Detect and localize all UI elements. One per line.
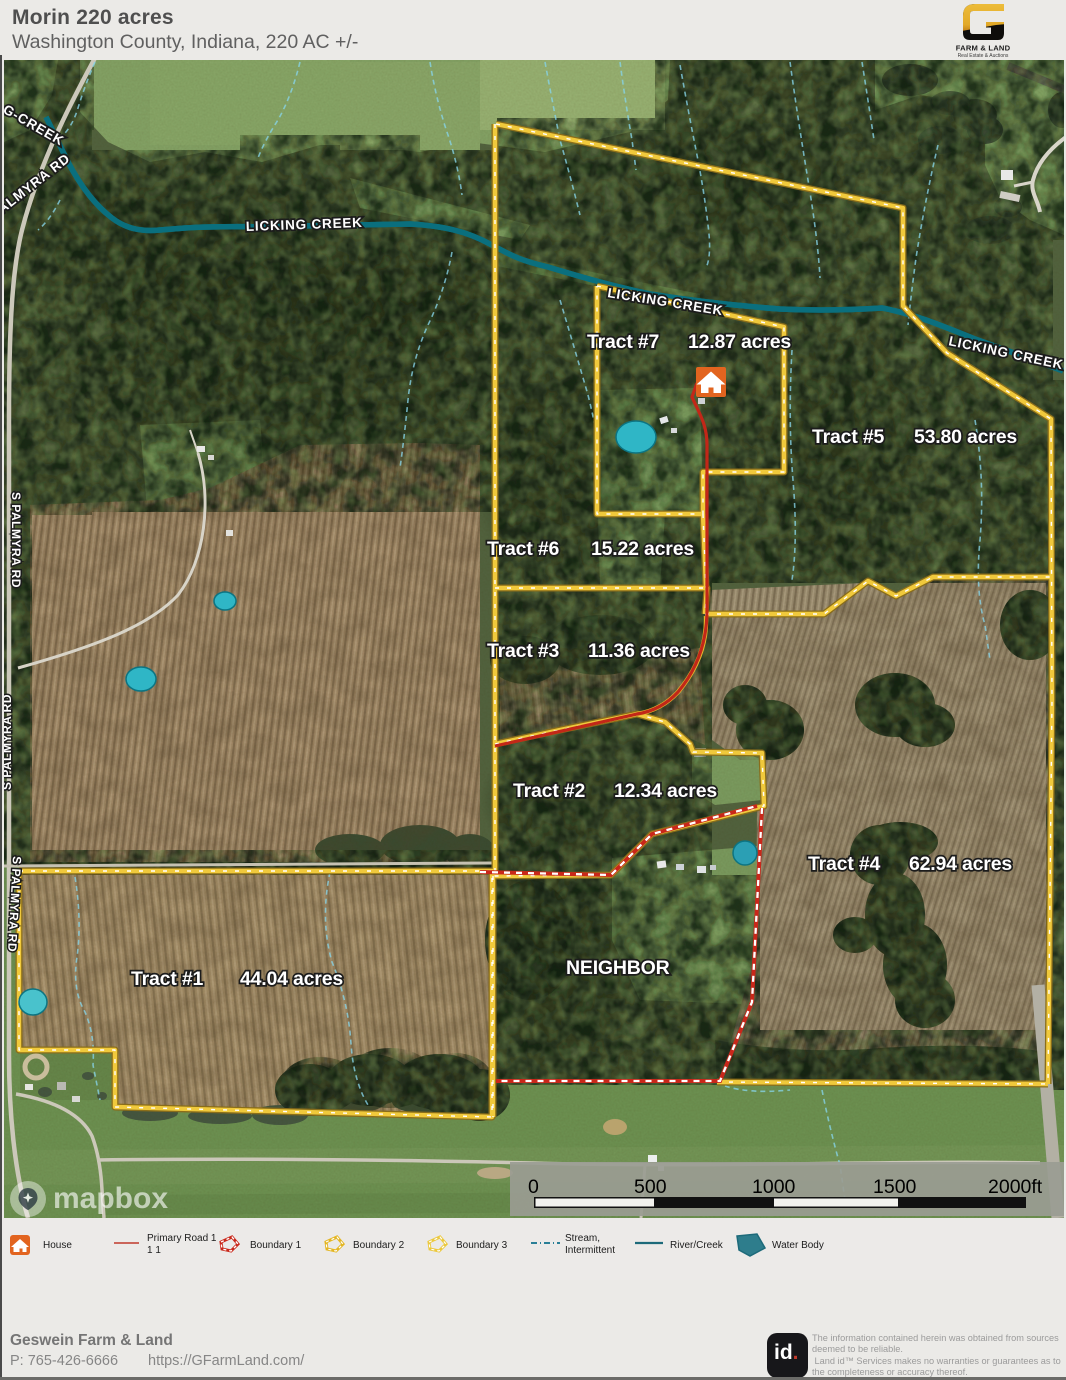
svg-text:Tract #5: Tract #5 bbox=[812, 426, 884, 448]
svg-text:Real Estate & Auctions: Real Estate & Auctions bbox=[958, 53, 1009, 59]
svg-text:12.87 acres: 12.87 acres bbox=[688, 331, 791, 353]
svg-text:NEIGHBOR: NEIGHBOR bbox=[566, 957, 670, 979]
svg-text:1 1: 1 1 bbox=[147, 1245, 161, 1256]
svg-text:Tract #3: Tract #3 bbox=[487, 640, 559, 662]
svg-text:Primary Road 1: Primary Road 1 bbox=[147, 1233, 217, 1244]
svg-text:River/Creek: River/Creek bbox=[670, 1240, 724, 1251]
svg-text:Tract #2: Tract #2 bbox=[513, 780, 585, 802]
svg-text:500: 500 bbox=[634, 1176, 667, 1198]
svg-text:Stream,: Stream, bbox=[565, 1233, 600, 1244]
svg-text:Tract #4: Tract #4 bbox=[808, 853, 880, 875]
svg-text:Boundary 3: Boundary 3 bbox=[456, 1240, 508, 1251]
svg-text:0: 0 bbox=[528, 1176, 539, 1198]
svg-text:mapbox: mapbox bbox=[53, 1182, 168, 1215]
svg-text:2000ft: 2000ft bbox=[988, 1176, 1043, 1198]
svg-text:Boundary 2: Boundary 2 bbox=[353, 1240, 405, 1251]
svg-text:FARM & LAND: FARM & LAND bbox=[956, 44, 1011, 53]
svg-text:Water Body: Water Body bbox=[772, 1240, 824, 1251]
svg-text:Tract #6: Tract #6 bbox=[487, 538, 559, 560]
svg-text:Boundary 1: Boundary 1 bbox=[250, 1240, 302, 1251]
svg-text:Intermittent: Intermittent bbox=[565, 1245, 615, 1256]
svg-text:S PALMYRA RD: S PALMYRA RD bbox=[9, 492, 23, 588]
svg-text:S PALMYRA RD: S PALMYRA RD bbox=[4, 694, 14, 790]
svg-text:Tract #7: Tract #7 bbox=[587, 331, 659, 353]
svg-text:11.36 acres: 11.36 acres bbox=[588, 640, 690, 662]
svg-text:12.34 acres: 12.34 acres bbox=[614, 780, 717, 802]
svg-text:House: House bbox=[43, 1240, 72, 1251]
svg-text:15.22 acres: 15.22 acres bbox=[591, 538, 694, 560]
svg-text:1500: 1500 bbox=[873, 1176, 917, 1198]
svg-text:44.04 acres: 44.04 acres bbox=[240, 968, 343, 990]
svg-text:Tract #1: Tract #1 bbox=[131, 968, 203, 990]
svg-text:62.94 acres: 62.94 acres bbox=[909, 853, 1012, 875]
svg-text:1000: 1000 bbox=[752, 1176, 796, 1198]
svg-text:53.80 acres: 53.80 acres bbox=[914, 426, 1017, 448]
